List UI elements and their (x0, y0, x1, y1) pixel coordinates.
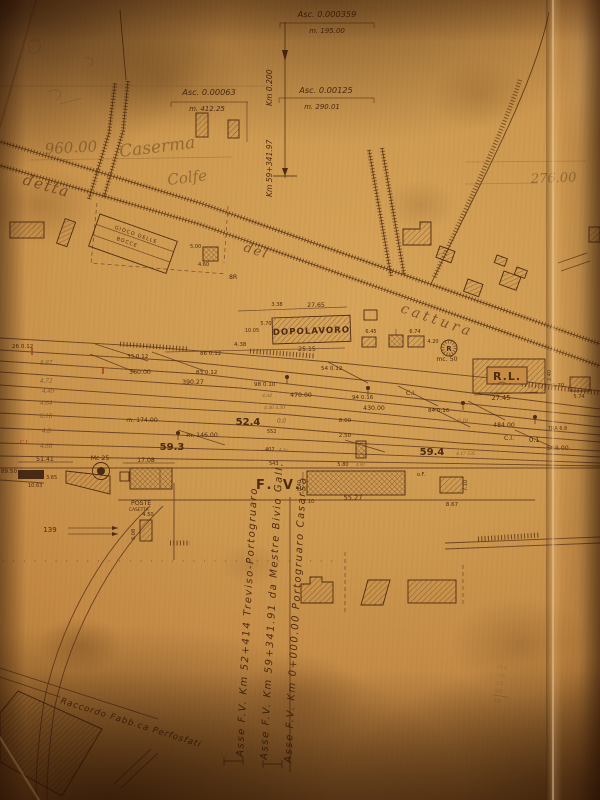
track-number: 59.4 (420, 447, 445, 458)
switch-label: 83 0.12 (196, 370, 217, 376)
roads (0, 10, 600, 366)
dim-label: 8.67 (446, 502, 459, 508)
building (440, 477, 463, 493)
goods-shed (130, 468, 172, 489)
dopolavoro-building: DOPOLAVORO (272, 315, 351, 344)
building (10, 222, 44, 238)
pencil-number: 0.0 (277, 417, 286, 425)
dim-label: 139 (43, 526, 56, 534)
building (464, 279, 483, 297)
dim-label: 1.70 (552, 383, 565, 389)
dim-label: 4.50 (142, 512, 153, 518)
dim-label: 6.74 (409, 329, 420, 335)
loading-ramp (66, 471, 110, 494)
gradient-note: m. 412.25 (189, 105, 225, 113)
gradient-note: m. 195.00 (309, 27, 345, 35)
ink-labels: Asc. 0.000359 m. 195.00 Asc. 0.00063 m. … (1, 9, 585, 540)
dim-label: 25.15 (298, 346, 316, 353)
axis-note-1: Asse F.V. Km 52+414 Treviso-Portogruaro (235, 487, 260, 758)
track-number: 0.1 (529, 436, 540, 444)
pencil-number: 4.46 4.30 (264, 405, 285, 411)
planned-building (408, 580, 456, 603)
dim-label: 5.00 (190, 244, 201, 250)
building (196, 113, 208, 137)
of-label: o.F. (417, 472, 426, 478)
fv-station-building (307, 471, 405, 495)
pencil-number: 4.72 (40, 377, 53, 385)
switch-label: 94 0.16 (352, 395, 374, 401)
svg-text:7.6: 7.6 (493, 698, 501, 705)
handwritten-labels: 960.00 276.00 Caserma Colfe detta del ca… (21, 133, 577, 341)
pencil-number: 4.17 535 (456, 451, 476, 457)
dim-label: 27.65 (307, 302, 325, 309)
track-length: m. 174.00 (126, 417, 158, 424)
dim-label: 2.40 (547, 370, 553, 381)
capacity-label: Mc 25 (91, 455, 110, 462)
dim-label: 55.27 (344, 494, 363, 502)
svg-text:1.5: 1.5 (496, 680, 504, 687)
building (203, 247, 218, 261)
track-length: 484.00 (493, 422, 515, 429)
dim-label: 4.60 (198, 262, 209, 268)
small-building (140, 520, 152, 541)
gradient-note: Asc. 0.000359 (297, 9, 357, 19)
area-measure: 276.00 (530, 170, 577, 187)
building (494, 255, 507, 266)
platform-block (18, 470, 44, 479)
scanned-railway-plan: GIOCO DELLE BOCCE DOPOLAVORO R (0, 0, 600, 800)
pencil-number: 6.18 (40, 412, 53, 420)
pencil-number: 4.44 (262, 393, 272, 399)
dim-label: 89.50 (1, 469, 17, 475)
track-number: 59.3 (160, 442, 185, 453)
capacity-label: mc. 50 (436, 356, 457, 363)
building (362, 337, 376, 347)
gradient-note: m. 290.01 (304, 103, 340, 111)
track-length: 568.00 (547, 445, 569, 452)
switch-label: 98 0.10 (254, 382, 276, 388)
chainage-label: 407 (265, 447, 275, 453)
track-length: 360.00 (129, 369, 151, 376)
svg-text:2.6: 2.6 (497, 672, 505, 679)
dim-label: 6.45 (365, 329, 376, 335)
poste-label: POSTE (131, 500, 151, 507)
building (57, 219, 76, 247)
dim-label: 17.08 (137, 457, 155, 464)
chainage-label: 552 (267, 429, 277, 435)
water-crane-symbol: R (441, 340, 457, 356)
pencil-number: 4.00 (356, 463, 365, 468)
planned-building (361, 580, 390, 605)
pencil-number: 4.35 (279, 448, 288, 453)
building (589, 227, 600, 242)
svg-text:10.6: 10.6 (497, 664, 508, 672)
track-length: m. 146.00 (186, 432, 218, 439)
handwritten-note: Colfe (166, 166, 208, 189)
dim-label: 3.65 (46, 475, 57, 481)
road-name: detta (21, 171, 73, 202)
planned-building (301, 577, 333, 603)
dim-label: 5.70 (260, 321, 271, 327)
track-length: 430.00 (363, 405, 385, 412)
pencil-construction-lines (0, 40, 586, 184)
rl-building: R.L. (473, 359, 545, 393)
dim-label: 4.20 (427, 339, 438, 345)
axis-notes: Asse F.V. Km 52+414 Treviso-Portogruaro … (59, 461, 309, 764)
track-number: 52.4 (236, 417, 261, 428)
small-structure (120, 472, 129, 481)
building (389, 335, 403, 347)
km-marker: Km 59+341.97 (265, 139, 274, 197)
dim-label: 27.45 (492, 394, 511, 402)
pencil-number: 4.49 (42, 387, 55, 395)
gradient-note: Asc. 0.00125 (298, 85, 352, 95)
gradient-note: Asc. 0.00063 (181, 87, 235, 97)
dim-label: 2.50 (339, 433, 352, 439)
switch-label: 84 0.16 (428, 408, 450, 414)
ci-label: C.I. (406, 390, 416, 397)
building (364, 310, 377, 320)
building (408, 336, 424, 347)
dim-label: 51.41 (36, 456, 54, 463)
switch-label: 26 0.12 (12, 344, 33, 350)
dim-label: 6.08 (131, 529, 137, 540)
rl-label: R.L. (493, 370, 521, 383)
km-marker: Km 0.200 (265, 69, 274, 106)
dim-label: 3.38 (271, 302, 282, 308)
r-symbol-label: R (446, 345, 452, 353)
building (570, 377, 590, 391)
pencil-number: 8.87 (40, 359, 53, 367)
dim-label: 10.05 (245, 328, 259, 334)
building (403, 222, 431, 245)
dim-label: 4.38 (234, 342, 247, 348)
pencil-number: 4.64 (40, 399, 53, 407)
track-length: 470.00 (290, 392, 312, 399)
bocce-court: GIOCO DELLE BOCCE (89, 214, 178, 273)
axis-note-2: Asse F.V. Km 59+341.91 da Mestre Bivio G… (259, 461, 286, 761)
pencil-sum: 10.6 2.6 1.5 4.6 7.6 (491, 664, 514, 706)
pencil-number: 6.18 (458, 418, 468, 424)
road-name: del (242, 240, 271, 262)
axis-note-3: Asse F.V. Km 0+000.00 Portogruaro Casars… (283, 476, 309, 764)
pencil-number: 4.8 (42, 427, 51, 435)
building (436, 246, 455, 263)
dim-label: 7.10 (463, 480, 469, 491)
dim-label: 5.80 (337, 462, 348, 468)
ci-label: C.I. (504, 435, 514, 442)
track-note: TRA 6.8 (547, 426, 567, 432)
switch-label: 33 0.12 (127, 354, 148, 360)
svg-text:4.6: 4.6 (494, 688, 502, 695)
switch-label: 86 0.12 (200, 351, 221, 357)
dim-label: 10.63 (28, 483, 42, 489)
track-length: 390.27 (182, 379, 204, 386)
dim-label: 5.74 (573, 394, 584, 400)
dim-label: 8R (229, 274, 238, 281)
building (228, 120, 239, 138)
ci-red-label: C.I. (20, 439, 30, 446)
switch-label: 54 0.12 (321, 366, 342, 372)
area-measure: 960.00 (44, 137, 98, 158)
plan-drawing: GIOCO DELLE BOCCE DOPOLAVORO R (0, 0, 600, 800)
pencil-number: 4.88 (40, 442, 53, 450)
dim-label: 8.00 (339, 418, 352, 424)
